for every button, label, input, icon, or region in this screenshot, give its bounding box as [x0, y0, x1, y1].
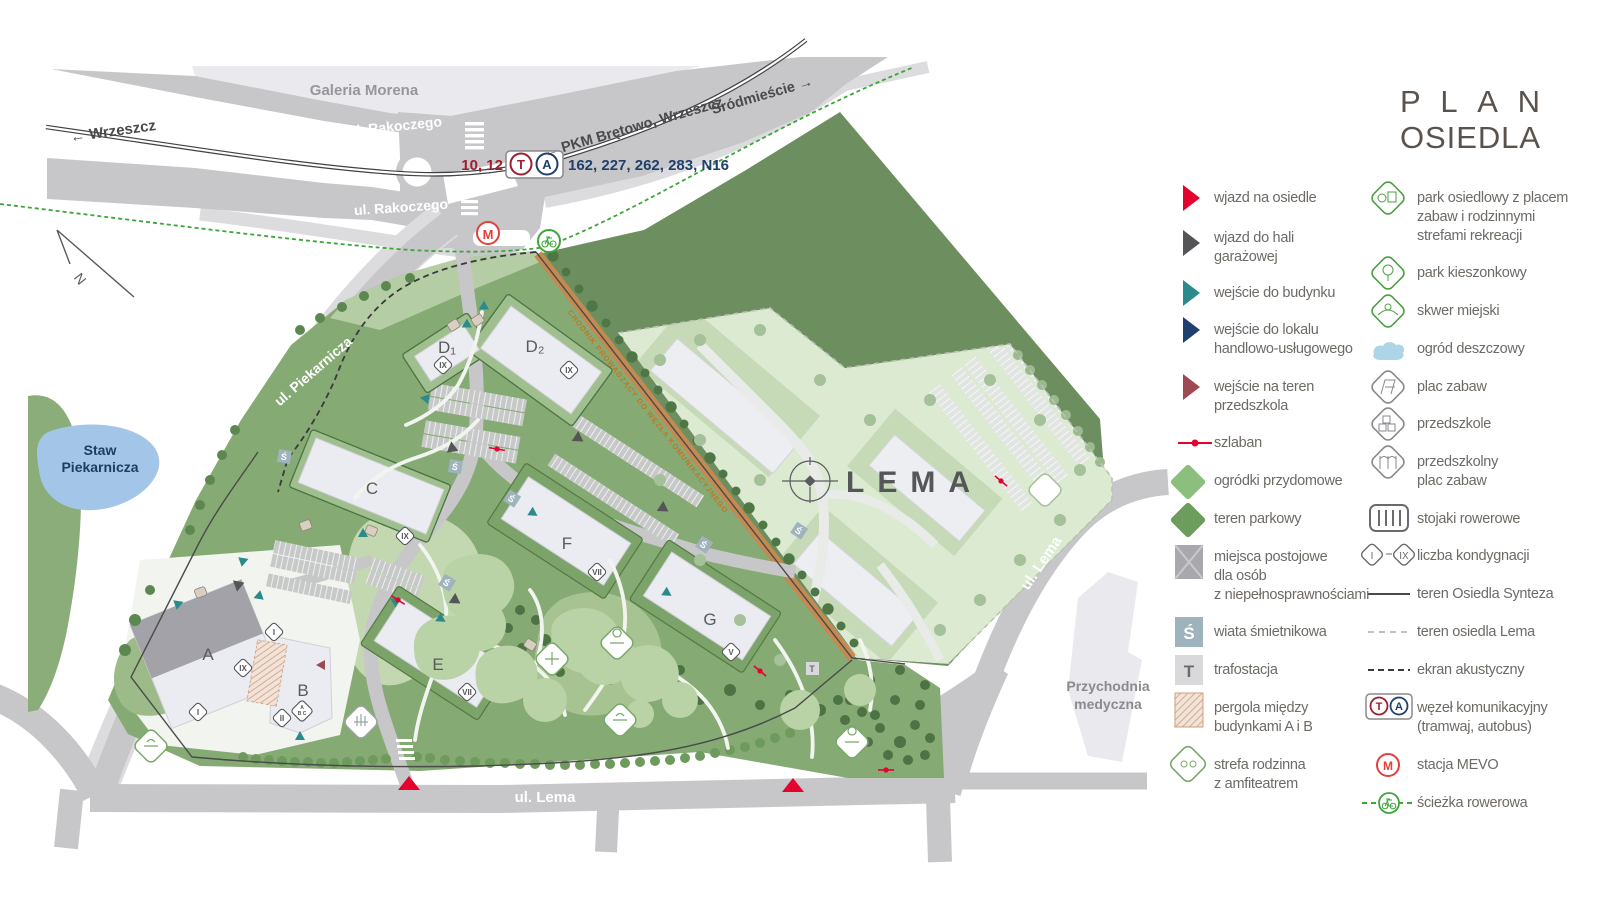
svg-text:VII: VII [462, 688, 472, 697]
svg-text:I: I [273, 628, 275, 637]
svg-text:IX: IX [439, 361, 447, 370]
svg-text:Piekarnicza: Piekarnicza [61, 459, 138, 475]
svg-text:T: T [517, 157, 525, 172]
svg-text:IX: IX [1399, 551, 1409, 562]
svg-text:162, 227, 262, 283, N16: 162, 227, 262, 283, N16 [568, 157, 729, 174]
svg-text:M: M [1383, 759, 1393, 773]
svg-text:Staw: Staw [84, 442, 117, 458]
svg-text:A: A [202, 645, 214, 664]
svg-text:A: A [1395, 701, 1403, 713]
svg-text:medyczna: medyczna [1074, 696, 1142, 712]
svg-text:D₂: D₂ [526, 337, 545, 356]
svg-text:F: F [562, 534, 572, 553]
svg-text:T: T [1376, 701, 1383, 713]
svg-text:T: T [1184, 662, 1195, 681]
svg-text:D₁: D₁ [438, 338, 456, 357]
svg-text:IX: IX [565, 366, 573, 375]
svg-text:C: C [366, 479, 378, 498]
svg-text:LEMA: LEMA [846, 466, 983, 499]
svg-text:Ś: Ś [1183, 624, 1194, 643]
svg-text:VII: VII [592, 568, 602, 577]
svg-text:E: E [432, 655, 443, 674]
svg-text:Przychodnia: Przychodnia [1066, 678, 1149, 694]
svg-text:II: II [280, 714, 284, 723]
svg-text:Galeria Morena: Galeria Morena [310, 82, 419, 99]
svg-text:M: M [483, 227, 494, 242]
svg-text:I: I [1371, 551, 1374, 562]
svg-text:B: B [297, 681, 308, 700]
svg-text:10, 12: 10, 12 [461, 157, 503, 174]
svg-text:IX: IX [239, 664, 247, 673]
svg-text:I: I [197, 708, 199, 717]
svg-text:G: G [703, 610, 716, 629]
svg-text:IX: IX [401, 532, 409, 541]
svg-text:OSIEDLA: OSIEDLA [1400, 120, 1540, 155]
svg-text:ul. Lema: ul. Lema [515, 789, 577, 806]
svg-text:T: T [809, 664, 815, 674]
svg-text:V: V [728, 648, 734, 657]
svg-text:B C: B C [298, 711, 307, 717]
